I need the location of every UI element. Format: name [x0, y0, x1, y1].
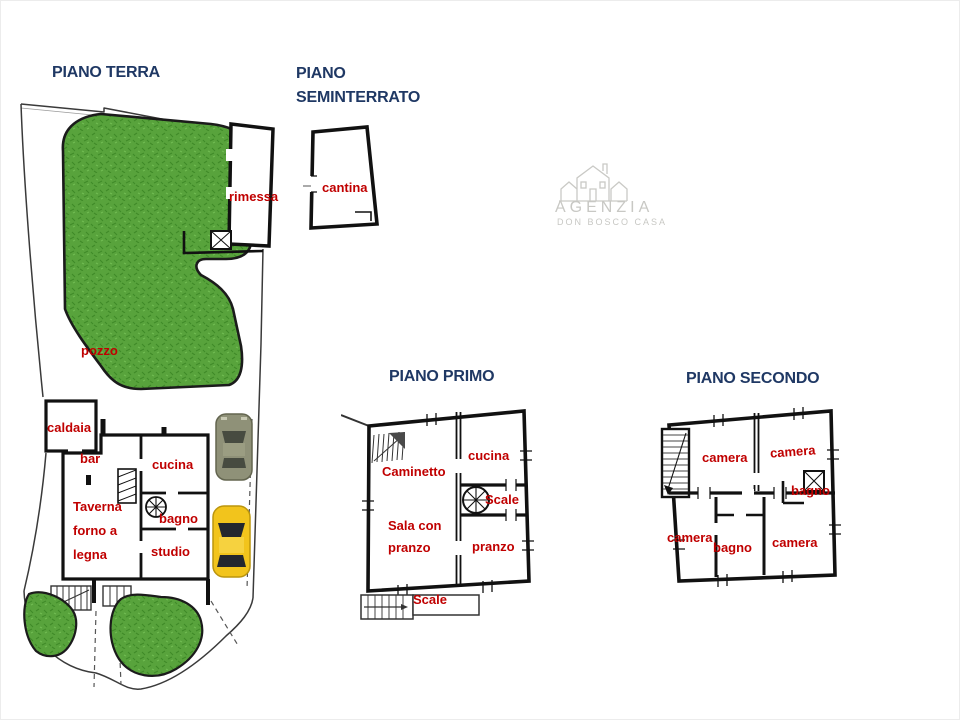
- rimessa-room: [226, 124, 273, 246]
- room-label-scale-upper: Scale: [485, 493, 519, 507]
- room-label-bagno-bottom: bagno: [713, 541, 752, 555]
- room-label-camera-top-left: camera: [702, 451, 748, 465]
- room-label-caldaia: caldaia: [47, 421, 91, 435]
- bar-counter-icon: [86, 475, 91, 485]
- floor-title-piano-primo: PIANO PRIMO: [389, 365, 494, 389]
- floor-title-piano-seminterrato: PIANO SEMINTERRATO: [296, 62, 436, 110]
- room-label-studio: studio: [151, 545, 190, 559]
- room-label-cucina-terra: cucina: [152, 458, 193, 472]
- room-label-caminetto: Caminetto: [382, 465, 446, 479]
- watermark-houses-icon: [557, 163, 629, 203]
- piano-seminterrato-plan: [303, 124, 388, 234]
- cantina-room: [303, 127, 377, 228]
- room-label-sala-con-pranzo: Sala con pranzo: [388, 515, 460, 559]
- piano-secondo-plan: [646, 403, 846, 593]
- room-label-bar: bar: [80, 452, 100, 466]
- room-label-camera-bottom-right: camera: [772, 536, 818, 550]
- room-label-cantina: cantina: [322, 181, 368, 195]
- room-label-cucina-primo: cucina: [468, 449, 509, 463]
- floorplan-page: AGENZIA DON BOSCO CASA PIANO TERRA PIANO…: [0, 0, 960, 720]
- yellow-car-icon: [213, 506, 250, 577]
- room-label-camera-bottom-left: camera: [667, 531, 713, 545]
- room-label-scale-lower: Scale: [413, 593, 447, 607]
- roof-line: [341, 415, 369, 426]
- watermark-agency-name: AGENZIA: [555, 199, 653, 217]
- room-label-pozzo: pozzo: [81, 344, 118, 358]
- watermark-subtitle: DON BOSCO CASA: [557, 217, 667, 227]
- gray-car-icon: [216, 414, 252, 480]
- room-label-taverna: Taverna forno a legna: [73, 495, 151, 567]
- lawn-patch-right: [111, 595, 203, 676]
- room-label-bagno-terra: bagno: [159, 512, 198, 526]
- floor-title-piano-secondo: PIANO SECONDO: [686, 367, 819, 391]
- room-label-rimessa: rimessa: [229, 190, 278, 204]
- stairwell-icon: [662, 429, 689, 497]
- room-label-pranzo: pranzo: [472, 540, 515, 554]
- floor-title-piano-terra: PIANO TERRA: [52, 61, 160, 85]
- room-label-bagno-right: bagno: [791, 484, 830, 498]
- piano-terra-plan: [6, 89, 286, 709]
